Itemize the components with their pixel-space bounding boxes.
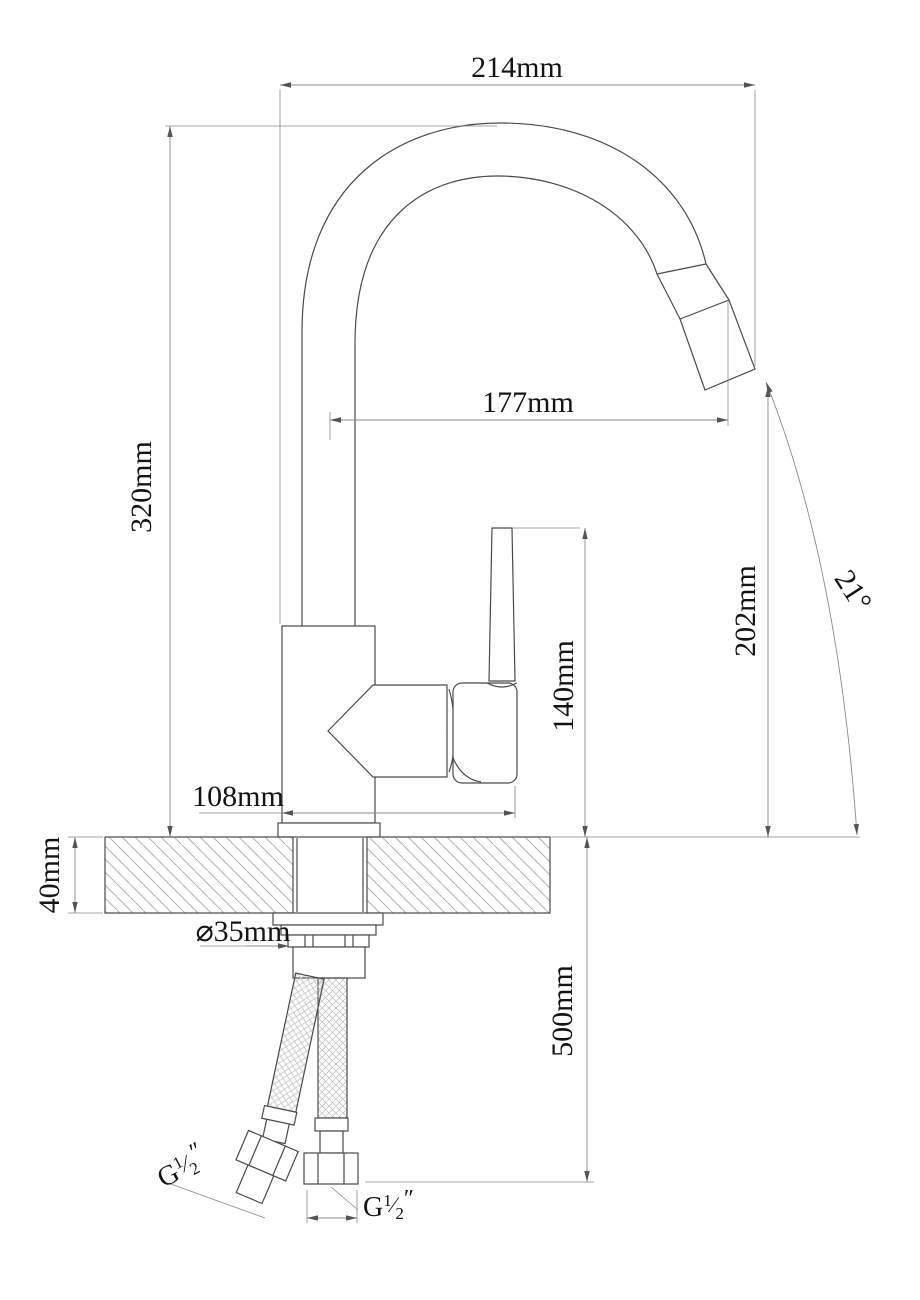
shank-through-deck	[297, 838, 363, 912]
dim-overall-height-label: 320mm	[125, 441, 158, 533]
dim-spout-reach-label: 177mm	[482, 386, 574, 419]
angle-arc	[766, 382, 857, 835]
dim-deck-thickness-label: 40mm	[33, 837, 66, 914]
dim-outlet-height-label: 202mm	[729, 565, 762, 657]
dim-outlet-angle-label: 21°	[828, 564, 879, 617]
handle-base	[453, 683, 517, 783]
thread-label-left: G1⁄2″	[149, 1138, 211, 1195]
drawing-svg: 214mm 177mm 320mm 140mm 202mm 21° 108mm …	[0, 0, 920, 1300]
riser-tube	[302, 332, 355, 626]
dim-spout-width-label: 214mm	[471, 51, 563, 84]
dim-hose-length-label: 500mm	[546, 965, 579, 1057]
handle-lever	[489, 528, 515, 681]
dim-base-length-label: 108mm	[192, 780, 284, 813]
dim-hole-diameter-label: ⌀35mm	[196, 915, 291, 948]
hex-nut-right	[304, 1153, 358, 1184]
aerator	[680, 300, 755, 390]
spout-inner-curve	[355, 176, 657, 344]
faucet-technical-drawing: 214mm 177mm 320mm 140mm 202mm 21° 108mm …	[0, 0, 920, 1300]
thread-label-right: G1⁄2″	[363, 1186, 414, 1223]
spout-outer-curve	[302, 123, 706, 332]
faucet-body	[278, 123, 755, 837]
dim-handle-height-label: 140mm	[547, 640, 580, 732]
countertop	[105, 837, 550, 913]
